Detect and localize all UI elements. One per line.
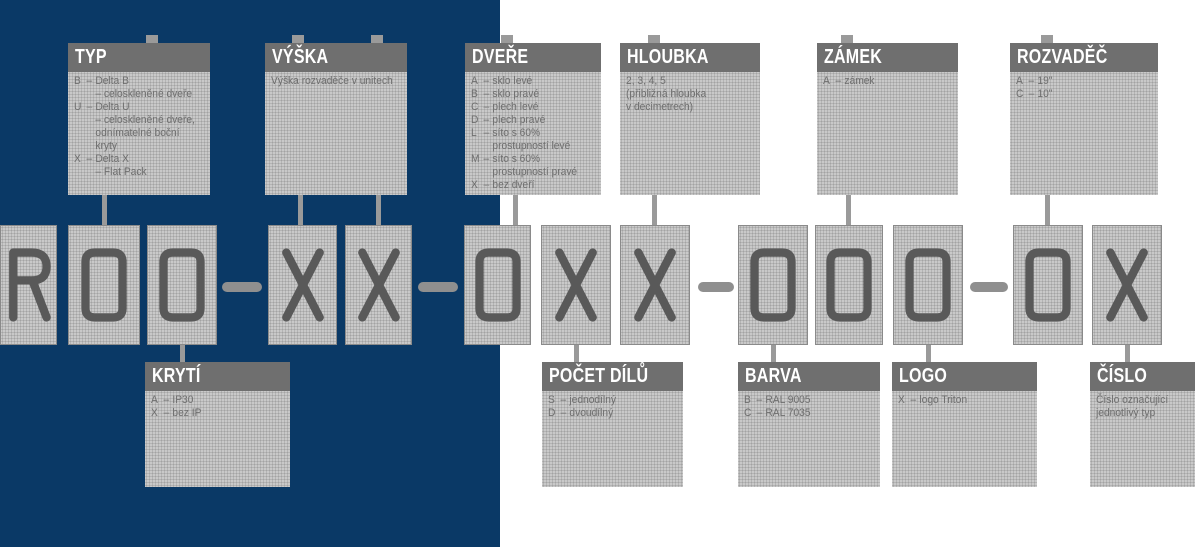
legend-item: M – síto s 60% prostupností pravé xyxy=(471,153,595,179)
legend-box-title: TYP xyxy=(75,46,107,69)
legend-box-title: ČÍSLO xyxy=(1097,365,1147,388)
legend-box-vyska-body: Výška rozvaděče v unitech xyxy=(265,72,407,195)
connector-typ xyxy=(102,195,107,226)
legend-item-text: Delta U – celoskleněné dveře, odnímateln… xyxy=(95,101,195,153)
code-char-glyph xyxy=(157,247,207,323)
code-separator-dash xyxy=(418,282,458,292)
legend-item-text: sklo pravé xyxy=(492,88,539,101)
legend-box-hloubka-header: HLOUBKA xyxy=(620,43,760,72)
legend-item: B – RAL 9005 xyxy=(744,394,874,407)
legend-box-typ-body: B – Delta B – celoskleněné dveře U – Del… xyxy=(68,72,210,195)
legend-item-text: plech pravé xyxy=(492,114,545,127)
legend-item: C – 10" xyxy=(1016,88,1152,101)
legend-item-separator: – xyxy=(480,179,492,192)
legend-item-text: Delta B – celoskleněné dveře xyxy=(95,75,192,101)
code-char-glyph xyxy=(473,247,523,323)
connector-stub xyxy=(501,35,513,43)
legend-box-pocet-dilu-body: S – jednodílný D – dvoudílný xyxy=(542,391,683,487)
connector-hloubka xyxy=(652,195,657,226)
legend-item: D – dvoudílný xyxy=(548,407,677,420)
legend-box-rozvadec-body: A – 19" C – 10" xyxy=(1010,72,1158,195)
legend-item-separator: – xyxy=(160,394,172,407)
legend-item-key: X xyxy=(74,153,83,166)
legend-item-text: RAL 9005 xyxy=(765,394,810,407)
legend-box-title: VÝŠKA xyxy=(272,46,328,69)
code-char-glyph xyxy=(79,247,129,323)
legend-item-key: D xyxy=(471,114,480,127)
code-char-glyph xyxy=(278,247,328,323)
connector-stub xyxy=(146,35,158,43)
connector-stub xyxy=(292,35,304,43)
legend-box-hloubka-body: 2, 3, 4, 5 (přibližná hloubka v decimetr… xyxy=(620,72,760,195)
legend-item-separator: – xyxy=(480,127,492,140)
legend-box-dvere-body: A – sklo levé B – sklo pravé C – plech l… xyxy=(465,72,601,195)
legend-item-text: Delta X – Flat Pack xyxy=(95,153,146,179)
connector-stub xyxy=(648,35,660,43)
legend-item: A – IP30 xyxy=(151,394,284,407)
legend-note: 2, 3, 4, 5 (přibližná hloubka v decimetr… xyxy=(626,75,754,114)
legend-box-zamek-body: A – zámek xyxy=(817,72,958,195)
code-char-box xyxy=(68,225,140,345)
legend-box-title: KRYTÍ xyxy=(152,365,201,388)
legend-item-separator: – xyxy=(83,153,95,166)
legend-item: B – Delta B – celoskleněné dveře xyxy=(74,75,204,101)
legend-item-key: C xyxy=(1016,88,1025,101)
legend-item-separator: – xyxy=(480,88,492,101)
legend-item: C – RAL 7035 xyxy=(744,407,874,420)
code-char-glyph xyxy=(1102,247,1152,323)
legend-box-title: LOGO xyxy=(899,365,947,388)
legend-item: U – Delta U – celoskleněné dveře, odníma… xyxy=(74,101,204,153)
legend-item: X – logo Triton xyxy=(898,394,1031,407)
code-char-glyph xyxy=(630,247,680,323)
legend-box-title: BARVA xyxy=(745,365,802,388)
legend-box-title: DVEŘE xyxy=(472,46,528,69)
legend-item-separator: – xyxy=(557,394,569,407)
legend-box-zamek: ZÁMEK A – zámek xyxy=(817,43,958,195)
code-char-glyph xyxy=(748,247,798,323)
legend-box-pocet-dilu-header: POČET DÍLŮ xyxy=(542,362,683,391)
code-char-box xyxy=(0,225,57,345)
connector-cislo xyxy=(1125,344,1130,363)
legend-box-logo-body: X – logo Triton xyxy=(892,391,1037,487)
code-char-box xyxy=(147,225,217,345)
code-char-box xyxy=(1013,225,1083,345)
code-char-box xyxy=(464,225,531,345)
legend-box-rozvadec: ROZVADĚČ A – 19" C – 10" xyxy=(1010,43,1158,195)
legend-item-separator: – xyxy=(753,394,765,407)
legend-item-separator: – xyxy=(480,101,492,114)
legend-box-typ: TYP B – Delta B – celoskleněné dveře U –… xyxy=(68,43,210,195)
legend-item-text: síto s 60% prostupností levé xyxy=(492,127,570,153)
legend-item-key: A xyxy=(1016,75,1025,88)
legend-box-cislo-header: ČÍSLO xyxy=(1090,362,1195,391)
legend-box-logo-header: LOGO xyxy=(892,362,1037,391)
legend-item-text: RAL 7035 xyxy=(765,407,810,420)
legend-item: X – Delta X – Flat Pack xyxy=(74,153,204,179)
legend-box-title: ZÁMEK xyxy=(824,46,882,69)
legend-item-key: B xyxy=(744,394,753,407)
legend-item: S – jednodílný xyxy=(548,394,677,407)
legend-box-barva-header: BARVA xyxy=(738,362,880,391)
connector-stub xyxy=(841,35,853,43)
code-char-box xyxy=(815,225,883,345)
code-char-box xyxy=(738,225,808,345)
legend-item-separator: – xyxy=(1025,88,1037,101)
legend-box-title: ROZVADĚČ xyxy=(1017,46,1108,69)
legend-box-pocet-dilu: POČET DÍLŮ S – jednodílný D – dvoudílný xyxy=(542,362,683,487)
legend-item-key: A xyxy=(823,75,832,88)
legend-item: D – plech pravé xyxy=(471,114,595,127)
legend-item-text: sklo levé xyxy=(492,75,532,88)
legend-item-key: B xyxy=(471,88,480,101)
connector-dvere xyxy=(513,195,518,226)
connector-kryti xyxy=(180,344,185,363)
connector-vyska-1 xyxy=(298,195,303,226)
legend-box-dvere: DVEŘE A – sklo levé B – sklo pravé xyxy=(465,43,601,195)
legend-box-logo: LOGO X – logo Triton xyxy=(892,362,1037,487)
legend-item: X – bez dveří xyxy=(471,179,595,192)
legend-item: B – sklo pravé xyxy=(471,88,595,101)
legend-item-separator: – xyxy=(83,75,95,88)
code-char-box xyxy=(541,225,611,345)
connector-rozvadec xyxy=(1045,195,1050,226)
legend-note: Výška rozvaděče v unitech xyxy=(271,75,401,88)
legend-item-text: plech levé xyxy=(492,101,538,114)
legend-item-key: C xyxy=(744,407,753,420)
connector-logo xyxy=(926,344,931,363)
legend-item-separator: – xyxy=(1025,75,1037,88)
code-separator-dash xyxy=(698,282,734,292)
connector-zamek xyxy=(846,195,851,226)
legend-box-kryti: KRYTÍ A – IP30 X – bez IP xyxy=(145,362,290,487)
legend-item: C – plech levé xyxy=(471,101,595,114)
legend-box-title: POČET DÍLŮ xyxy=(549,365,648,388)
legend-item-separator: – xyxy=(160,407,172,420)
code-char-box xyxy=(1092,225,1162,345)
connector-stub xyxy=(371,35,383,43)
code-char-box xyxy=(893,225,963,345)
legend-box-typ-header: TYP xyxy=(68,43,210,72)
legend-item: X – bez IP xyxy=(151,407,284,420)
legend-box-kryti-body: A – IP30 X – bez IP xyxy=(145,391,290,487)
legend-box-dvere-header: DVEŘE xyxy=(465,43,601,72)
legend-box-vyska-header: VÝŠKA xyxy=(265,43,407,72)
legend-box-rozvadec-header: ROZVADĚČ xyxy=(1010,43,1158,72)
legend-item-key: S xyxy=(548,394,557,407)
legend-item-text: dvoudílný xyxy=(569,407,613,420)
legend-item-text: síto s 60% prostupností pravé xyxy=(492,153,577,179)
code-char-glyph xyxy=(903,247,953,323)
legend-note: Číslo označující jednotlivý typ xyxy=(1096,394,1189,420)
legend-box-hloubka: HLOUBKA 2, 3, 4, 5 (přibližná hloubka v … xyxy=(620,43,760,195)
code-char-box xyxy=(620,225,690,345)
legend-box-cislo-body: Číslo označující jednotlivý typ xyxy=(1090,391,1195,487)
legend-item-separator: – xyxy=(753,407,765,420)
code-char-glyph xyxy=(354,247,404,323)
code-char-glyph xyxy=(551,247,601,323)
legend-item: A – sklo levé xyxy=(471,75,595,88)
connector-vyska-2 xyxy=(376,195,381,226)
legend-item-key: M xyxy=(471,153,480,166)
code-char-glyph xyxy=(824,247,874,323)
legend-item: A – zámek xyxy=(823,75,952,88)
legend-item-separator: – xyxy=(480,114,492,127)
legend-item-text: logo Triton xyxy=(919,394,967,407)
legend-item-text: IP30 xyxy=(172,394,193,407)
legend-box-barva: BARVA B – RAL 9005 C – RAL 7035 xyxy=(738,362,880,487)
legend-item-text: zámek xyxy=(844,75,874,88)
connector-barva xyxy=(771,344,776,363)
code-separator-dash xyxy=(970,282,1008,292)
legend-item-separator: – xyxy=(557,407,569,420)
code-char-box xyxy=(345,225,412,345)
legend-item-separator: – xyxy=(907,394,919,407)
legend-item-key: X xyxy=(471,179,480,192)
legend-item-key: D xyxy=(548,407,557,420)
legend-item-separator: – xyxy=(832,75,844,88)
legend-item: L – síto s 60% prostupností levé xyxy=(471,127,595,153)
legend-item-key: C xyxy=(471,101,480,114)
connector-stub xyxy=(1041,35,1053,43)
legend-box-kryti-header: KRYTÍ xyxy=(145,362,290,391)
legend-box-barva-body: B – RAL 9005 C – RAL 7035 xyxy=(738,391,880,487)
connector-pocet-dilu xyxy=(574,344,579,363)
code-char-glyph xyxy=(1023,247,1073,323)
legend-item-text: jednodílný xyxy=(569,394,616,407)
legend-item-separator: – xyxy=(480,75,492,88)
legend-item-separator: – xyxy=(480,153,492,166)
legend-item-text: bez IP xyxy=(172,407,201,420)
code-row xyxy=(0,225,1195,345)
legend-item-key: B xyxy=(74,75,83,88)
code-separator-dash xyxy=(222,282,262,292)
legend-item-key: X xyxy=(898,394,907,407)
legend-box-zamek-header: ZÁMEK xyxy=(817,43,958,72)
legend-box-cislo: ČÍSLO Číslo označující jednotlivý typ xyxy=(1090,362,1195,487)
legend-item-separator: – xyxy=(83,101,95,114)
legend-item-key: A xyxy=(151,394,160,407)
legend-item-key: L xyxy=(471,127,480,140)
legend-item-text: bez dveří xyxy=(492,179,534,192)
legend-item-key: A xyxy=(471,75,480,88)
diagram-stage: TYP B – Delta B – celoskleněné dveře U –… xyxy=(0,0,1195,547)
legend-item-key: X xyxy=(151,407,160,420)
legend-box-vyska: VÝŠKA Výška rozvaděče v unitech xyxy=(265,43,407,195)
legend-item: A – 19" xyxy=(1016,75,1152,88)
legend-item-text: 19" xyxy=(1037,75,1052,88)
code-char-box xyxy=(268,225,337,345)
legend-item-text: 10" xyxy=(1037,88,1052,101)
legend-box-title: HLOUBKA xyxy=(627,46,709,69)
code-char-glyph xyxy=(4,247,54,323)
legend-item-key: U xyxy=(74,101,83,114)
